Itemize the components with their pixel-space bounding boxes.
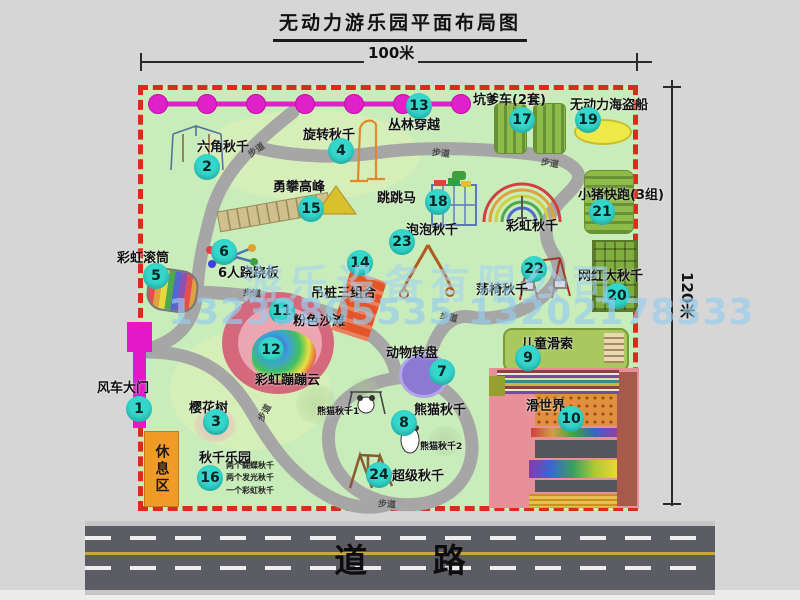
badge-hanging-post-combo: 14 <box>347 250 373 276</box>
dimension-tick <box>636 53 638 71</box>
badge-rotating-swing: 4 <box>328 138 354 164</box>
label-kengdie-car: 坑爹车(2套) <box>473 89 546 108</box>
swing-park-note: 两个蝴蝶秋千 <box>226 460 274 472</box>
kengdie-car-mat <box>533 103 566 154</box>
badge-seesaw-6p: 6 <box>211 239 237 265</box>
badge-jumping-horse: 18 <box>425 189 451 215</box>
label-swing-chair: 荡椅秋千 <box>476 279 528 298</box>
badge-kengdie-car: 17 <box>509 107 535 133</box>
rest-area: 休息区 <box>144 431 179 507</box>
dimension-tick <box>663 86 681 88</box>
label-climbing-peak: 勇攀高峰 <box>273 176 325 195</box>
label-piggy-run: 小猪快跑(3组) <box>578 184 664 203</box>
label-animal-carousel: 动物转盘 <box>386 342 438 361</box>
dimension-tick <box>663 503 681 505</box>
slide-dark-lane <box>535 480 617 492</box>
label-hex-swing: 六角秋千 <box>197 136 249 155</box>
page-title: 无动力游乐园平面布局图 <box>273 8 527 42</box>
dimension-line-right <box>671 80 673 506</box>
swing-park-note: 两个发光秋千 <box>226 472 274 484</box>
badge-hex-swing: 2 <box>194 154 220 180</box>
playground-layout-figure: 无动力游乐园平面布局图 100米 120米 <box>0 0 800 600</box>
badge-rainbow-roller: 5 <box>143 263 169 289</box>
rainbow-slide-strip <box>529 460 617 478</box>
badge-piggy-run: 21 <box>589 199 615 225</box>
badge-panda-swing: 8 <box>391 410 417 436</box>
label-panda-swing: 熊猫秋千 <box>414 399 466 418</box>
dimension-label-width: 100米 <box>364 42 418 63</box>
badge-big-swing: 20 <box>604 283 630 309</box>
badge-swing-chair: 22 <box>521 256 547 282</box>
badge-windmill-gate: 1 <box>126 396 152 422</box>
label-super-swing: 超级秋千 <box>392 465 444 484</box>
label-panda-swing-2: 熊猫秋千2 <box>420 439 462 452</box>
slide-dark-lane <box>535 440 617 458</box>
dimension-tick <box>140 53 142 71</box>
label-panda-swing-1: 熊猫秋千1 <box>317 404 359 417</box>
badge-jungle-crossing: 13 <box>406 93 432 119</box>
badge-pirate-ship: 19 <box>575 107 601 133</box>
label-hanging-post-combo: 吊桩三组合 <box>311 282 376 301</box>
swing-park-notes: 两个蝴蝶秋千 两个发光秋千 一个彩虹秋千 <box>226 460 274 497</box>
walkway-label: 步道 <box>243 285 262 299</box>
slide-platform <box>489 376 505 396</box>
badge-cherry-tree: 3 <box>203 409 229 435</box>
label-big-swing: 网红大秋千 <box>578 265 643 284</box>
gold-slide-strip <box>529 494 617 507</box>
dimension-label-height: 120米 <box>677 268 698 322</box>
label-pink-beach: 粉色沙滩 <box>293 310 345 329</box>
swing-park-note: 一个彩虹秋千 <box>226 485 274 497</box>
label-seesaw-6p: 6人跷跷板 <box>218 262 279 281</box>
windmill-gate-structure <box>127 322 152 352</box>
badge-pink-beach: 11 <box>269 298 295 324</box>
label-rainbow-cloud: 彩虹蹦蹦云 <box>255 369 320 388</box>
badge-kids-zipline: 9 <box>515 345 541 371</box>
badge-slide-world: 10 <box>558 406 584 432</box>
label-rainbow-arch-swing: 彩虹秋千 <box>506 215 558 234</box>
badge-rainbow-cloud: 12 <box>258 337 284 363</box>
slide-lanes <box>497 370 619 394</box>
badge-climbing-peak: 15 <box>298 196 324 222</box>
label-jumping-horse: 跳跳马 <box>377 187 416 206</box>
badge-swing-park: 16 <box>197 465 223 491</box>
walkway-label: 步道 <box>431 145 450 160</box>
badge-bubble-swing: 23 <box>389 229 415 255</box>
slide-world-wall <box>617 372 637 506</box>
zipline-ladder <box>604 333 624 363</box>
slide-world-area <box>489 368 639 508</box>
rest-area-label: 休息区 <box>152 444 172 495</box>
badge-super-swing: 24 <box>366 462 392 488</box>
walkway-label: 步道 <box>378 496 397 510</box>
road-label: 道 路 <box>85 526 715 590</box>
badge-animal-carousel: 7 <box>429 359 455 385</box>
label-windmill-gate: 风车大门 <box>97 377 149 396</box>
label-bubble-swing: 泡泡秋千 <box>406 219 458 238</box>
road: 道 路 <box>85 521 715 595</box>
